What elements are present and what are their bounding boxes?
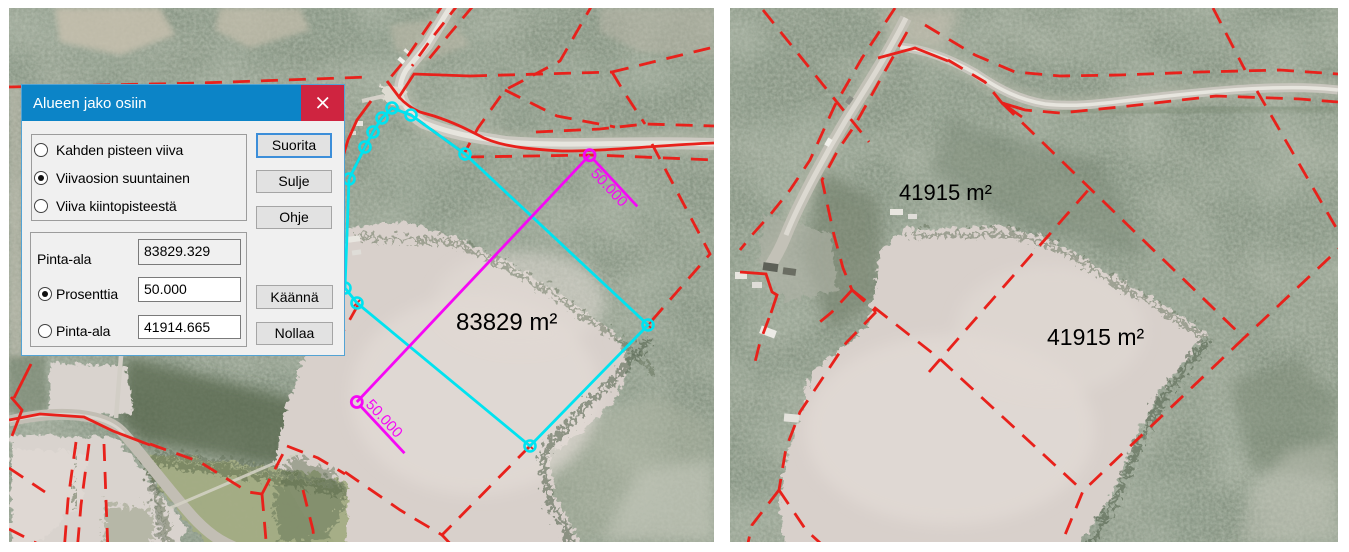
svg-text:41915 m²: 41915 m² <box>899 180 992 205</box>
svg-text:83829 m²: 83829 m² <box>456 309 557 336</box>
svg-text:41915 m²: 41915 m² <box>1047 324 1145 350</box>
